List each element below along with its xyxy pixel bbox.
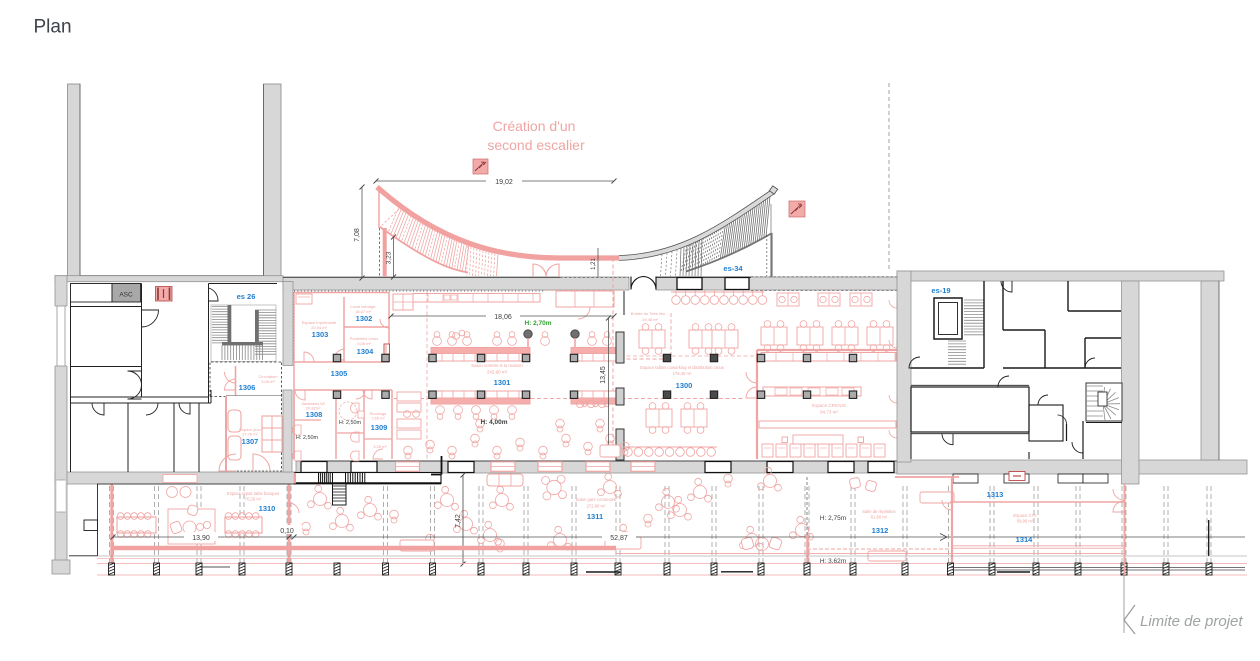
- svg-text:Espace CRIOUS: Espace CRIOUS: [812, 403, 846, 408]
- svg-text:es-34: es-34: [723, 264, 743, 273]
- svg-text:1301: 1301: [494, 378, 511, 387]
- svg-text:27,76 m²: 27,76 m²: [242, 432, 258, 437]
- svg-text:Création d'un: Création d'un: [493, 118, 576, 134]
- svg-text:1302: 1302: [356, 314, 373, 323]
- svg-text:18,06: 18,06: [494, 314, 512, 321]
- svg-text:70,29 m²: 70,29 m²: [245, 497, 262, 502]
- svg-text:H: 2,70m: H: 2,70m: [524, 320, 551, 327]
- svg-text:1304: 1304: [357, 347, 375, 356]
- svg-text:242,90 m²: 242,90 m²: [487, 370, 508, 375]
- svg-text:Salon gare connectée: Salon gare connectée: [576, 497, 617, 502]
- svg-text:ASC: ASC: [119, 292, 133, 299]
- svg-text:176,45 m²: 176,45 m²: [673, 371, 692, 376]
- svg-text:1312: 1312: [872, 526, 889, 535]
- svg-text:H: 2,75m: H: 2,75m: [820, 515, 846, 522]
- svg-text:272,80 m²: 272,80 m²: [587, 504, 606, 509]
- svg-text:Limite de projet: Limite de projet: [1140, 613, 1243, 630]
- svg-text:H: 3,62m: H: 3,62m: [820, 558, 846, 565]
- svg-text:1308: 1308: [306, 410, 323, 419]
- svg-text:19,48 m²: 19,48 m²: [642, 317, 658, 322]
- svg-text:Espace CTA: Espace CTA: [1013, 513, 1036, 518]
- svg-text:1313: 1313: [987, 490, 1004, 499]
- svg-text:7,08: 7,08: [354, 228, 361, 242]
- svg-text:7,65 m²: 7,65 m²: [371, 416, 385, 421]
- svg-text:94,73 m²: 94,73 m²: [820, 410, 838, 415]
- svg-text:Espace tables coworking et dis: Espace tables coworking et distribution …: [640, 365, 724, 370]
- svg-text:1300: 1300: [676, 381, 693, 390]
- svg-text:H: 4,00m: H: 4,00m: [480, 419, 507, 426]
- svg-text:3,06 m²: 3,06 m²: [261, 379, 275, 384]
- svg-text:0,10: 0,10: [280, 528, 294, 535]
- svg-text:Salle de répétition: Salle de répétition: [862, 509, 896, 514]
- svg-text:1,21: 1,21: [591, 258, 597, 270]
- svg-text:es-19: es-19: [931, 286, 950, 295]
- svg-text:1310: 1310: [259, 504, 276, 513]
- svg-text:es 26: es 26: [237, 292, 256, 301]
- svg-text:Salon comme à la maison: Salon comme à la maison: [471, 363, 523, 368]
- svg-text:7,42: 7,42: [455, 514, 462, 528]
- svg-text:81,80 m²: 81,80 m²: [871, 515, 888, 520]
- svg-text:H: 2,50m: H: 2,50m: [339, 420, 362, 426]
- svg-text:Entrée du Tiers lieu: Entrée du Tiers lieu: [631, 311, 665, 316]
- svg-text:1305: 1305: [331, 369, 348, 378]
- svg-text:second escalier: second escalier: [487, 137, 585, 153]
- svg-text:3,26 m²: 3,26 m²: [373, 444, 387, 449]
- svg-text:13,90: 13,90: [192, 535, 210, 542]
- svg-text:1314: 1314: [1016, 535, 1034, 544]
- svg-text:1311: 1311: [587, 512, 603, 521]
- svg-text:1307: 1307: [242, 437, 259, 446]
- svg-text:9,06 m²: 9,06 m²: [357, 341, 371, 346]
- svg-text:52,87: 52,87: [610, 535, 628, 542]
- svg-text:1306: 1306: [239, 383, 256, 392]
- svg-text:19,02: 19,02: [495, 179, 513, 186]
- svg-text:58,96 m²: 58,96 m²: [1017, 519, 1034, 524]
- svg-text:1309: 1309: [371, 423, 388, 432]
- svg-text:Plan: Plan: [34, 17, 72, 38]
- svg-text:1303: 1303: [312, 330, 329, 339]
- svg-text:13,45: 13,45: [600, 366, 607, 384]
- svg-text:3,23: 3,23: [386, 251, 393, 264]
- svg-text:H: 2,50m: H: 2,50m: [296, 435, 319, 441]
- svg-text:Espace repas table banquet: Espace repas table banquet: [227, 491, 280, 496]
